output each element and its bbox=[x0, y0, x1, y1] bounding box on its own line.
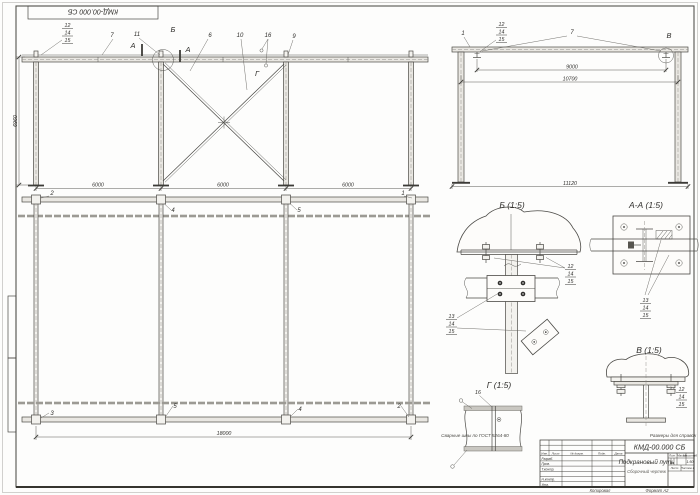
doc-number: КМД-00.000 СБ bbox=[634, 442, 686, 451]
gusset-plate bbox=[521, 319, 559, 355]
bolt bbox=[628, 242, 634, 249]
drawing-label: 6 bbox=[208, 33, 212, 39]
drawing-label: Г (1:5) bbox=[487, 380, 512, 390]
drawing-label: 16 bbox=[475, 390, 481, 396]
column-squares bbox=[32, 195, 416, 424]
tb-scale-label: Масштаб bbox=[683, 453, 697, 457]
drawing-label: Г bbox=[255, 69, 260, 78]
drawing-label: 10 bbox=[237, 33, 244, 39]
drawing-label: В (1:5) bbox=[636, 345, 662, 355]
column bbox=[403, 51, 419, 186]
weld-note: Сварные швы по ГОСТ 5264-80 bbox=[441, 433, 509, 438]
margin-cell bbox=[8, 296, 16, 358]
bolt bbox=[483, 242, 490, 263]
drawing-label: А bbox=[129, 41, 135, 50]
drawing-label: 1 bbox=[461, 31, 464, 37]
drawing-label: 1 bbox=[401, 191, 404, 197]
drawing-label: 16 bbox=[265, 33, 272, 39]
detail-aa bbox=[590, 216, 699, 295]
tb-sheet-cell: Лист bbox=[670, 466, 679, 470]
drawing-label: Б bbox=[171, 25, 176, 34]
elevation-view bbox=[17, 38, 429, 191]
drawing-title: Подкрановый путь bbox=[619, 459, 675, 466]
rail-hanger bbox=[662, 52, 670, 58]
drawing-subtitle: Сборочный чертеж bbox=[627, 469, 667, 474]
drawing-label: 5 bbox=[297, 208, 301, 214]
detail-b bbox=[457, 207, 581, 373]
detail-v bbox=[606, 354, 688, 428]
drawing-label: 6000 bbox=[92, 183, 104, 189]
drawing-label: 3 bbox=[50, 411, 54, 417]
tb-role-razrab: Разраб. bbox=[542, 457, 554, 461]
tb-col-list: Лист bbox=[551, 452, 560, 456]
drawing-label: 11120 bbox=[563, 181, 577, 187]
drawing-label: В bbox=[666, 31, 671, 40]
drawing-sheet: КМД-00.000 СБ bbox=[0, 0, 700, 495]
format-label: Формат А2 bbox=[646, 488, 670, 493]
drawing-label: 4 bbox=[298, 407, 302, 413]
drawing-label: 6000 bbox=[342, 183, 354, 189]
leader-lines bbox=[41, 196, 412, 418]
reference-note: Размеры для справок bbox=[650, 433, 697, 438]
drawing-label: 18000 bbox=[217, 431, 232, 437]
tb-role-utv: Утв. bbox=[542, 483, 549, 487]
column bbox=[153, 51, 169, 186]
x-bracing bbox=[163, 63, 286, 182]
drawing-label: 7 bbox=[110, 33, 114, 39]
drawing-label: А-А (1:5) bbox=[628, 200, 663, 210]
bolt bbox=[537, 242, 544, 263]
tb-lit-label: Лит. bbox=[668, 453, 676, 457]
drawing-canvas: КМД-00.000 СБ bbox=[0, 0, 700, 495]
tb-role-prov: Пров. bbox=[542, 462, 551, 466]
leader-lines bbox=[41, 38, 293, 90]
tb-role-nkontr: Н.контр. bbox=[542, 478, 556, 482]
tb-sheets-cell: Листов 1 bbox=[680, 466, 695, 470]
notes: Сварные швы по ГОСТ 5264-80 Размеры для … bbox=[441, 433, 697, 438]
doc-number-stamp: КМД-00.000 СБ bbox=[67, 8, 118, 15]
drawing-label: 4 bbox=[171, 208, 175, 214]
tb-col-data: Дата bbox=[614, 452, 623, 456]
drawing-label: 6960 bbox=[13, 115, 19, 127]
rail-hanger bbox=[473, 52, 481, 58]
drawing-label: 6000 bbox=[217, 183, 229, 189]
drawing-label: А bbox=[184, 45, 190, 54]
tb-scale-value: 1:50 bbox=[687, 460, 694, 464]
tb-col-podp: Подп. bbox=[598, 452, 606, 456]
dimensions bbox=[17, 55, 414, 191]
margin-cell bbox=[8, 358, 16, 432]
drawing-label: 2 bbox=[49, 191, 54, 197]
drawing-label: 10700 bbox=[563, 77, 578, 83]
copied-label: Копировал bbox=[590, 488, 611, 493]
drawing-label: 11 bbox=[134, 32, 140, 38]
title-block: КМД-00.000 СБ Подкрановый путь Сборочный… bbox=[540, 440, 697, 487]
tb-col-izm: Изм. bbox=[541, 452, 548, 456]
drawing-label: 5 bbox=[173, 404, 177, 410]
end-frame-view bbox=[450, 36, 690, 189]
tb-col-docnum: № докум. bbox=[570, 452, 583, 456]
drawing-label: Б (1:5) bbox=[499, 200, 525, 210]
drawing-label: 2 bbox=[396, 404, 401, 410]
tb-role-tkontr: Т.контр. bbox=[542, 467, 555, 471]
plan-view bbox=[18, 195, 430, 440]
detail-g bbox=[451, 396, 522, 469]
drawing-label: 9 bbox=[292, 34, 296, 40]
column bbox=[28, 51, 44, 186]
drawing-label: 9000 bbox=[566, 65, 578, 71]
column bbox=[278, 51, 294, 186]
drawing-label: 7 bbox=[570, 30, 574, 36]
